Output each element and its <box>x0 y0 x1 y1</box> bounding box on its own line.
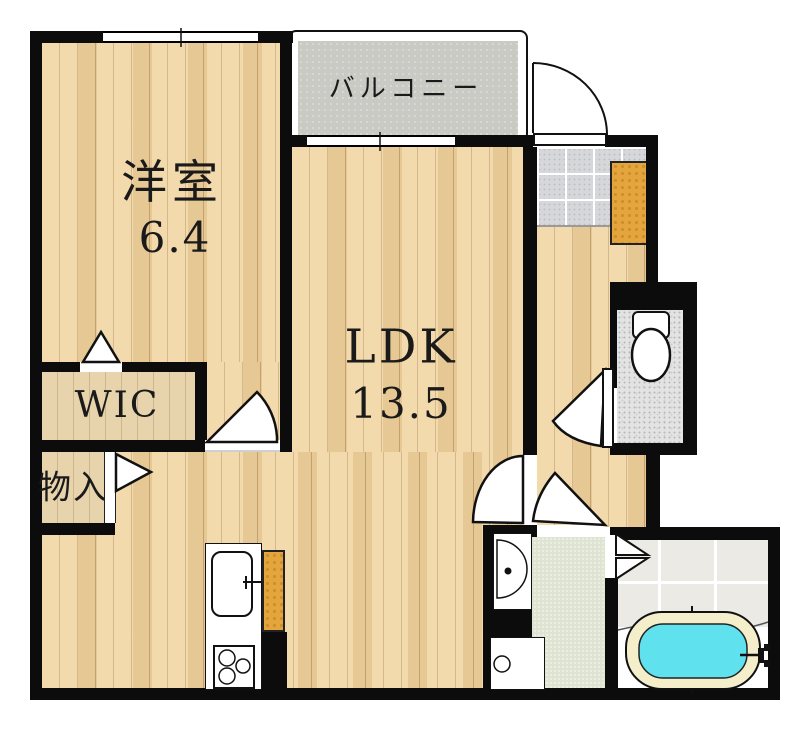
wall-toilet-left <box>610 282 617 388</box>
washing-machine-pan <box>490 637 545 690</box>
shoe-cabinet <box>610 161 648 245</box>
wall-right-mid <box>646 455 660 527</box>
kitchen-cabinet <box>262 550 285 632</box>
bath-door-opening <box>605 535 618 578</box>
western-room-window <box>103 31 258 43</box>
hallway-floor-lower <box>537 455 646 527</box>
gas-stove <box>213 645 255 689</box>
western-door-threshold <box>205 440 280 452</box>
toilet-floor <box>617 310 683 443</box>
entry-door-arc <box>533 63 607 135</box>
kitchen-end-block <box>260 632 287 692</box>
hallway-floor-mid <box>537 282 610 455</box>
wall-storage-bottom <box>30 523 115 535</box>
ldk-hall-door-threshold <box>523 455 537 523</box>
wic-door-threshold <box>80 362 122 372</box>
wall-toilet-bottom <box>610 443 697 455</box>
balcony-label: バルコニー <box>329 76 483 102</box>
ldk-window <box>307 135 455 147</box>
wall-wic-right <box>195 362 207 452</box>
wall-toilet-right <box>683 282 697 455</box>
wic-label: WIC <box>75 388 160 424</box>
western-room-floor-ext <box>207 362 280 442</box>
toilet-door-opening <box>610 388 617 443</box>
wall-bath-top <box>610 527 780 540</box>
wall-bath-right <box>768 527 780 700</box>
bathtub-zone <box>618 628 768 690</box>
bathroom-tile-floor <box>618 540 768 628</box>
western-room-label: 洋室 <box>121 159 223 205</box>
washroom-door-threshold <box>537 525 605 537</box>
washroom-counter-block <box>483 608 532 637</box>
storage-label: 物入 <box>38 471 108 504</box>
ldk-size: 13.5 <box>350 383 452 425</box>
entry-door-leaf <box>533 133 607 146</box>
wall-bottom <box>30 688 780 700</box>
floor-plan: 洋室 6.4 LDK 13.5 WIC 物入 バルコニー <box>0 0 812 729</box>
ldk-label: LDK <box>344 324 457 371</box>
kitchen-sink <box>211 551 253 617</box>
western-room-size: 6.4 <box>139 217 212 259</box>
wall-ldk-hallway <box>523 147 537 457</box>
washbasin <box>493 533 532 610</box>
wall-western-ldk <box>280 31 292 452</box>
wall-right-upper <box>646 135 658 282</box>
